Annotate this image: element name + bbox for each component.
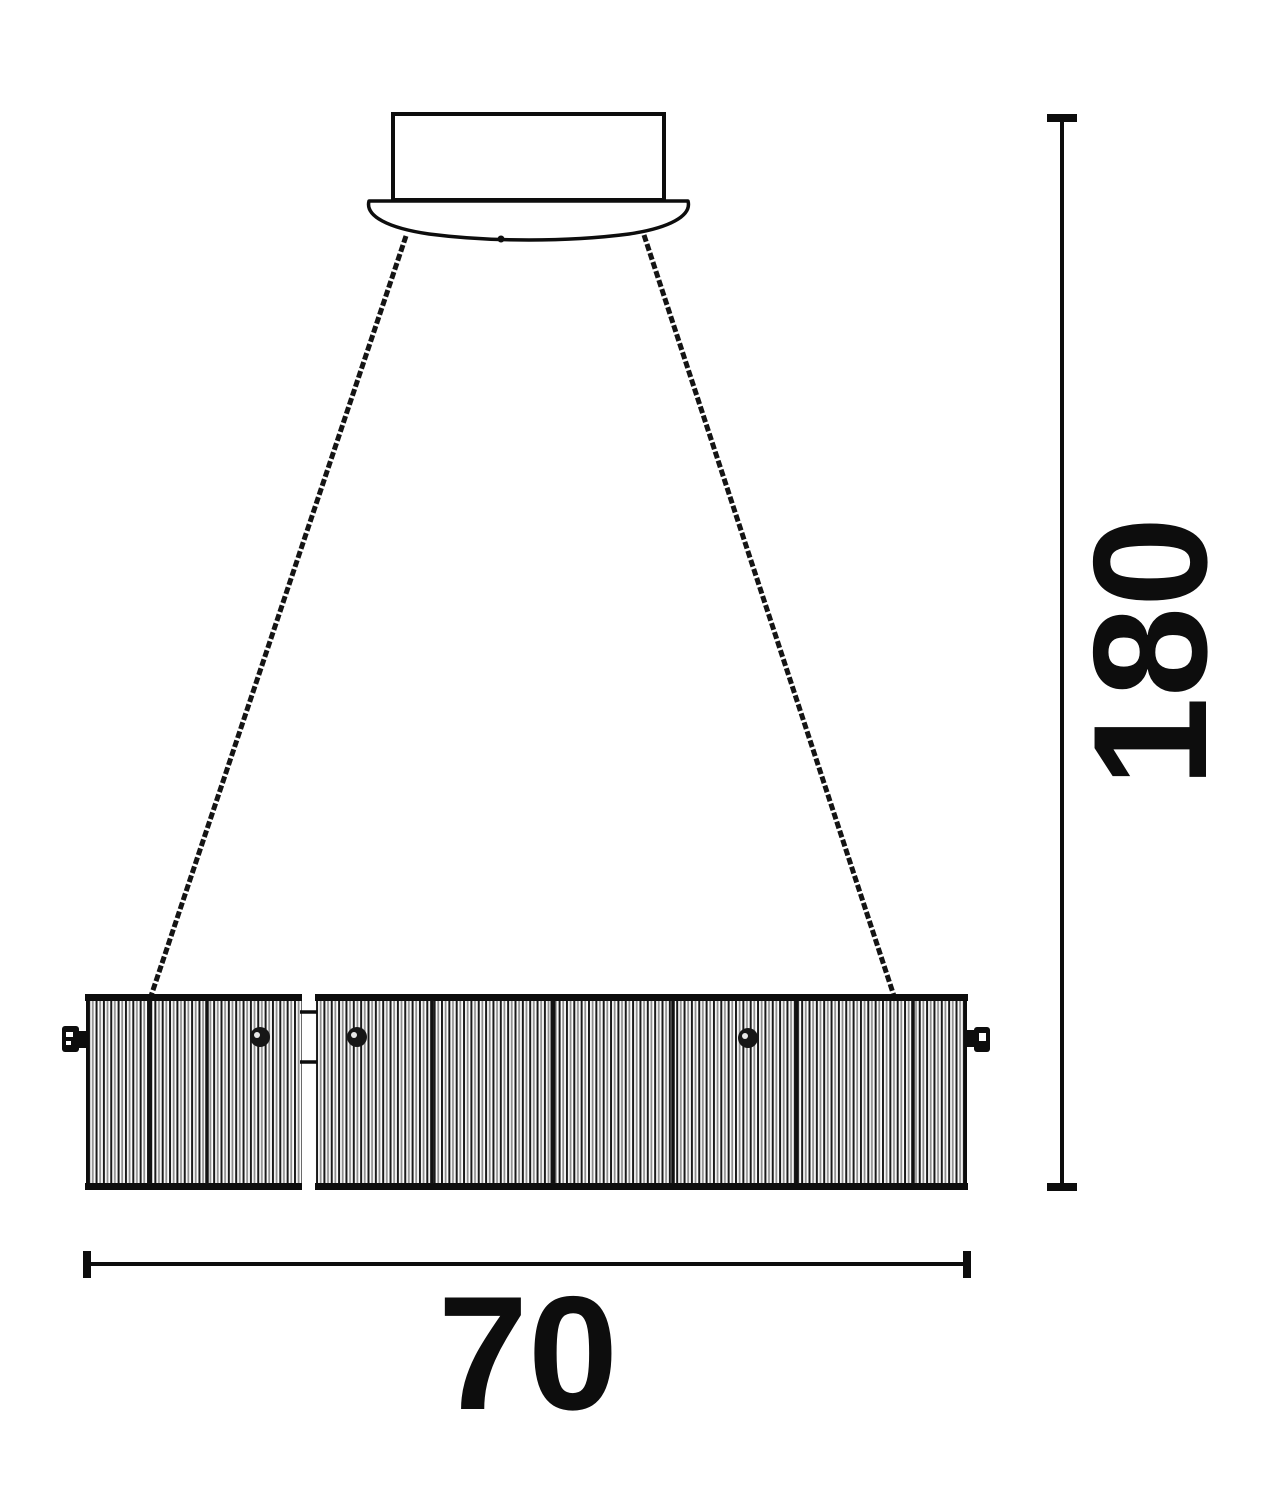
screw-knob [738,1028,758,1048]
side-screw-cap [62,1026,79,1052]
suspension-wire-left [151,236,406,996]
screw-knob-highlight [351,1032,357,1038]
screw-knob-highlight [742,1033,748,1039]
canopy-saucer [369,201,689,240]
screw-knob [250,1027,270,1047]
width-dimension-label: 70 [438,1263,618,1444]
suspension-wires [151,235,894,996]
side-screw-notch [979,1033,986,1041]
canopy-cable-nub [498,236,505,243]
height-dimension-label: 180 [1060,517,1241,787]
side-screw-notch [66,1041,71,1045]
side-screw-notch [66,1032,73,1037]
screw-knob [347,1027,367,1047]
canopy-group [369,114,689,243]
side-screw-right [966,1027,990,1052]
width-dimension: 70 [87,1251,967,1444]
canopy-center-tick [516,198,532,203]
side-screw-left [62,1026,87,1052]
drum-top-rim [85,994,968,1001]
height-dimension: 180 [1047,118,1241,1187]
suspension-wire-right [644,235,894,996]
drum-bottom-rim [85,1183,968,1190]
screw-knob-highlight [254,1032,260,1038]
pendant-lamp-diagram: 180 70 [0,0,1278,1500]
drum-shade-group [62,992,990,1193]
canopy-box [393,114,664,200]
panel-gap [302,992,315,1193]
drum-shade-body [86,996,967,1189]
dimension-drawing-canvas: 180 70 [0,0,1278,1500]
